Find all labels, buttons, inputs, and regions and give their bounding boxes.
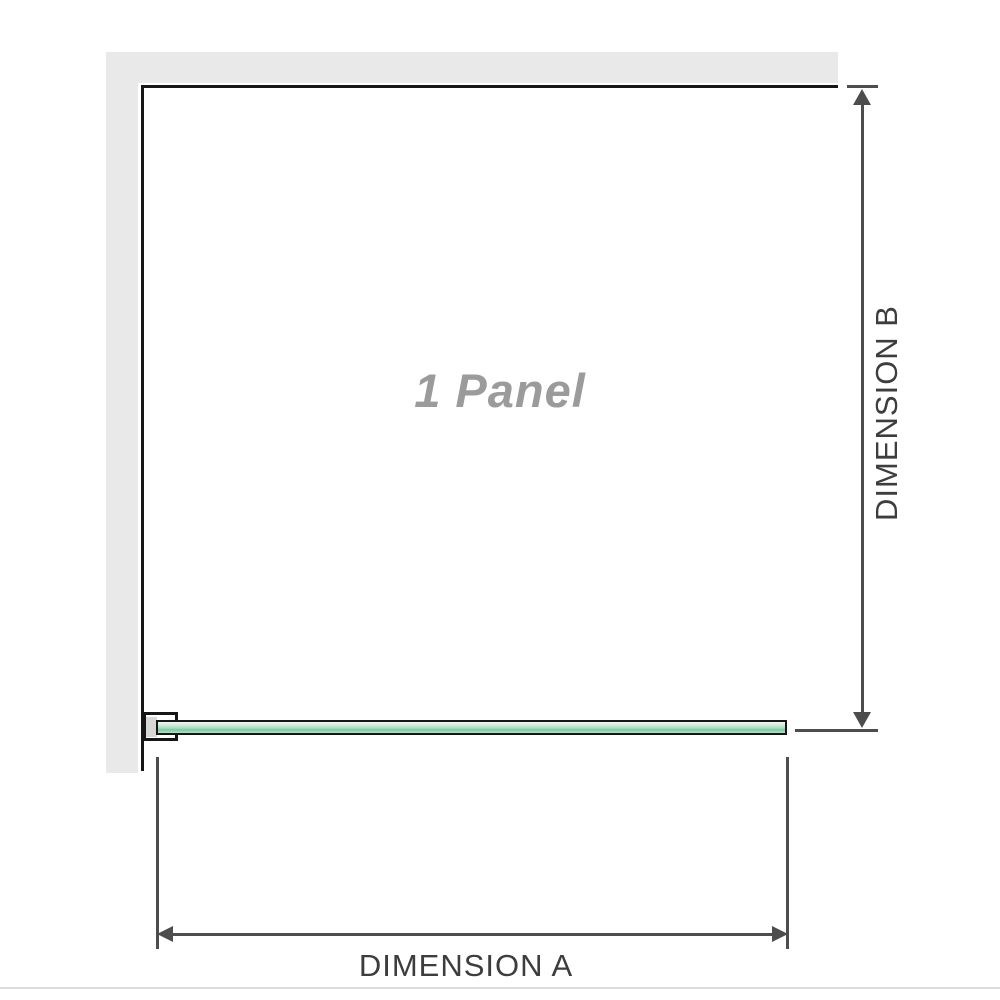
dimension-b-top-tick <box>847 85 878 88</box>
dimension-a-label: DIMENSION A <box>316 948 616 984</box>
dimension-b-bottom-tick <box>795 729 878 732</box>
wall-left-strip <box>106 52 138 773</box>
arrowhead-up-icon <box>853 89 871 105</box>
panel-outline-left <box>141 85 144 771</box>
glass-panel-plan <box>156 720 787 735</box>
panel-outline-top <box>141 85 838 88</box>
arrowhead-down-icon <box>853 712 871 728</box>
shower-panel-diagram: 1 Panel DIMENSION B DIMENSION A <box>0 0 1000 1000</box>
dimension-b-label: DIMENSION B <box>787 313 987 513</box>
dimension-a-arrow-line <box>162 933 783 936</box>
arrowhead-right-icon <box>772 926 788 942</box>
bottom-edge-line <box>0 987 1000 989</box>
dimension-a-right-extension <box>786 757 789 949</box>
panel-count-label: 1 Panel <box>350 363 650 418</box>
dimension-a-left-extension <box>156 757 159 949</box>
wall-top-strip <box>106 52 838 83</box>
arrowhead-left-icon <box>157 926 173 942</box>
